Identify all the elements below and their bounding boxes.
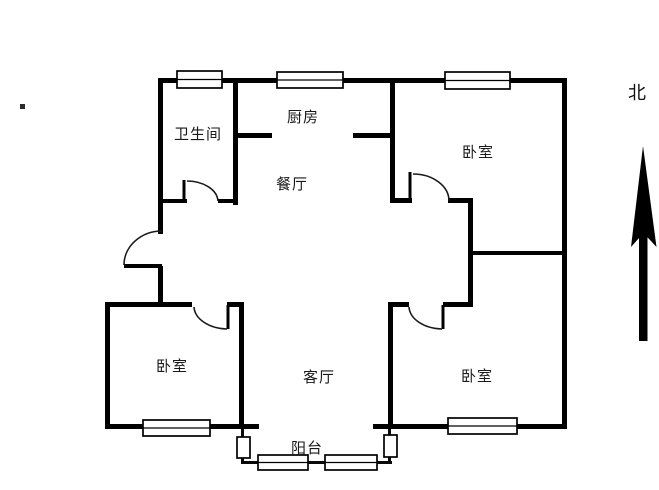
wall-living-bottom-right-stub xyxy=(373,424,393,429)
wall-bathroom-bottom-right xyxy=(218,199,238,203)
north-arrow-head-icon xyxy=(631,146,657,247)
label-dining: 餐厅 xyxy=(276,176,308,193)
wall-exterior-left-lower xyxy=(158,266,163,307)
wall-central-vertical xyxy=(468,198,473,307)
wall-kitchen-right xyxy=(390,78,395,203)
floorplan-image: 卫生间 厨房 餐厅 卧室 卧室 卧室 客厅 阳台 北 xyxy=(0,0,659,490)
label-bedroom-southwest: 卧室 xyxy=(156,358,188,375)
window-frame xyxy=(237,437,250,458)
wall-bedroom-se-left xyxy=(388,302,393,429)
label-balcony: 阳台 xyxy=(291,440,323,457)
window-kitchen xyxy=(277,72,343,88)
label-bathroom: 卫生间 xyxy=(174,126,222,143)
bathroom-door-arc xyxy=(187,181,218,201)
entry-door-arc xyxy=(124,231,162,265)
north-arrow-shaft xyxy=(639,233,648,341)
label-bedroom-southeast: 卧室 xyxy=(461,368,493,385)
wall-bedroom-sw-top-left xyxy=(105,302,192,307)
window-bathroom xyxy=(177,71,222,88)
label-living: 客厅 xyxy=(303,369,335,386)
wall-bedroom-sw-right xyxy=(239,302,244,429)
bedroom-north-door-arc xyxy=(413,174,449,201)
north-indicator: 北 xyxy=(628,83,657,341)
wall-living-bottom-left-stub xyxy=(244,424,259,429)
bedroom-sw-door-arc xyxy=(194,307,227,329)
bedroom-se-door-arc xyxy=(409,307,442,329)
north-label: 北 xyxy=(628,83,646,103)
wall-bathroom-right xyxy=(233,78,238,205)
floorplan-svg: 卫生间 厨房 餐厅 卧室 卧室 卧室 客厅 阳台 北 xyxy=(0,0,659,490)
window-balcony-bottom-1 xyxy=(258,455,308,470)
window-bedroom-north xyxy=(445,72,510,89)
wall-bedroom-sw-left xyxy=(105,302,110,429)
window-frame xyxy=(384,435,397,457)
wall-kitchen-bottom-right xyxy=(353,133,395,138)
window-balcony-bottom-2 xyxy=(325,455,377,470)
stray-mark xyxy=(20,104,25,109)
wall-kitchen-bottom-left xyxy=(233,133,272,138)
wall-exterior-left-upper xyxy=(158,78,163,234)
wall-right-bedrooms-divider xyxy=(473,251,567,255)
wall-bedroom-se-top-right xyxy=(443,302,473,307)
window-bedroom-sw xyxy=(143,420,210,436)
window-balcony-left xyxy=(237,437,250,458)
window-balcony-right xyxy=(384,435,397,457)
window-bedroom-se xyxy=(448,418,517,434)
label-bedroom-north: 卧室 xyxy=(462,144,494,161)
label-kitchen: 厨房 xyxy=(287,109,319,126)
